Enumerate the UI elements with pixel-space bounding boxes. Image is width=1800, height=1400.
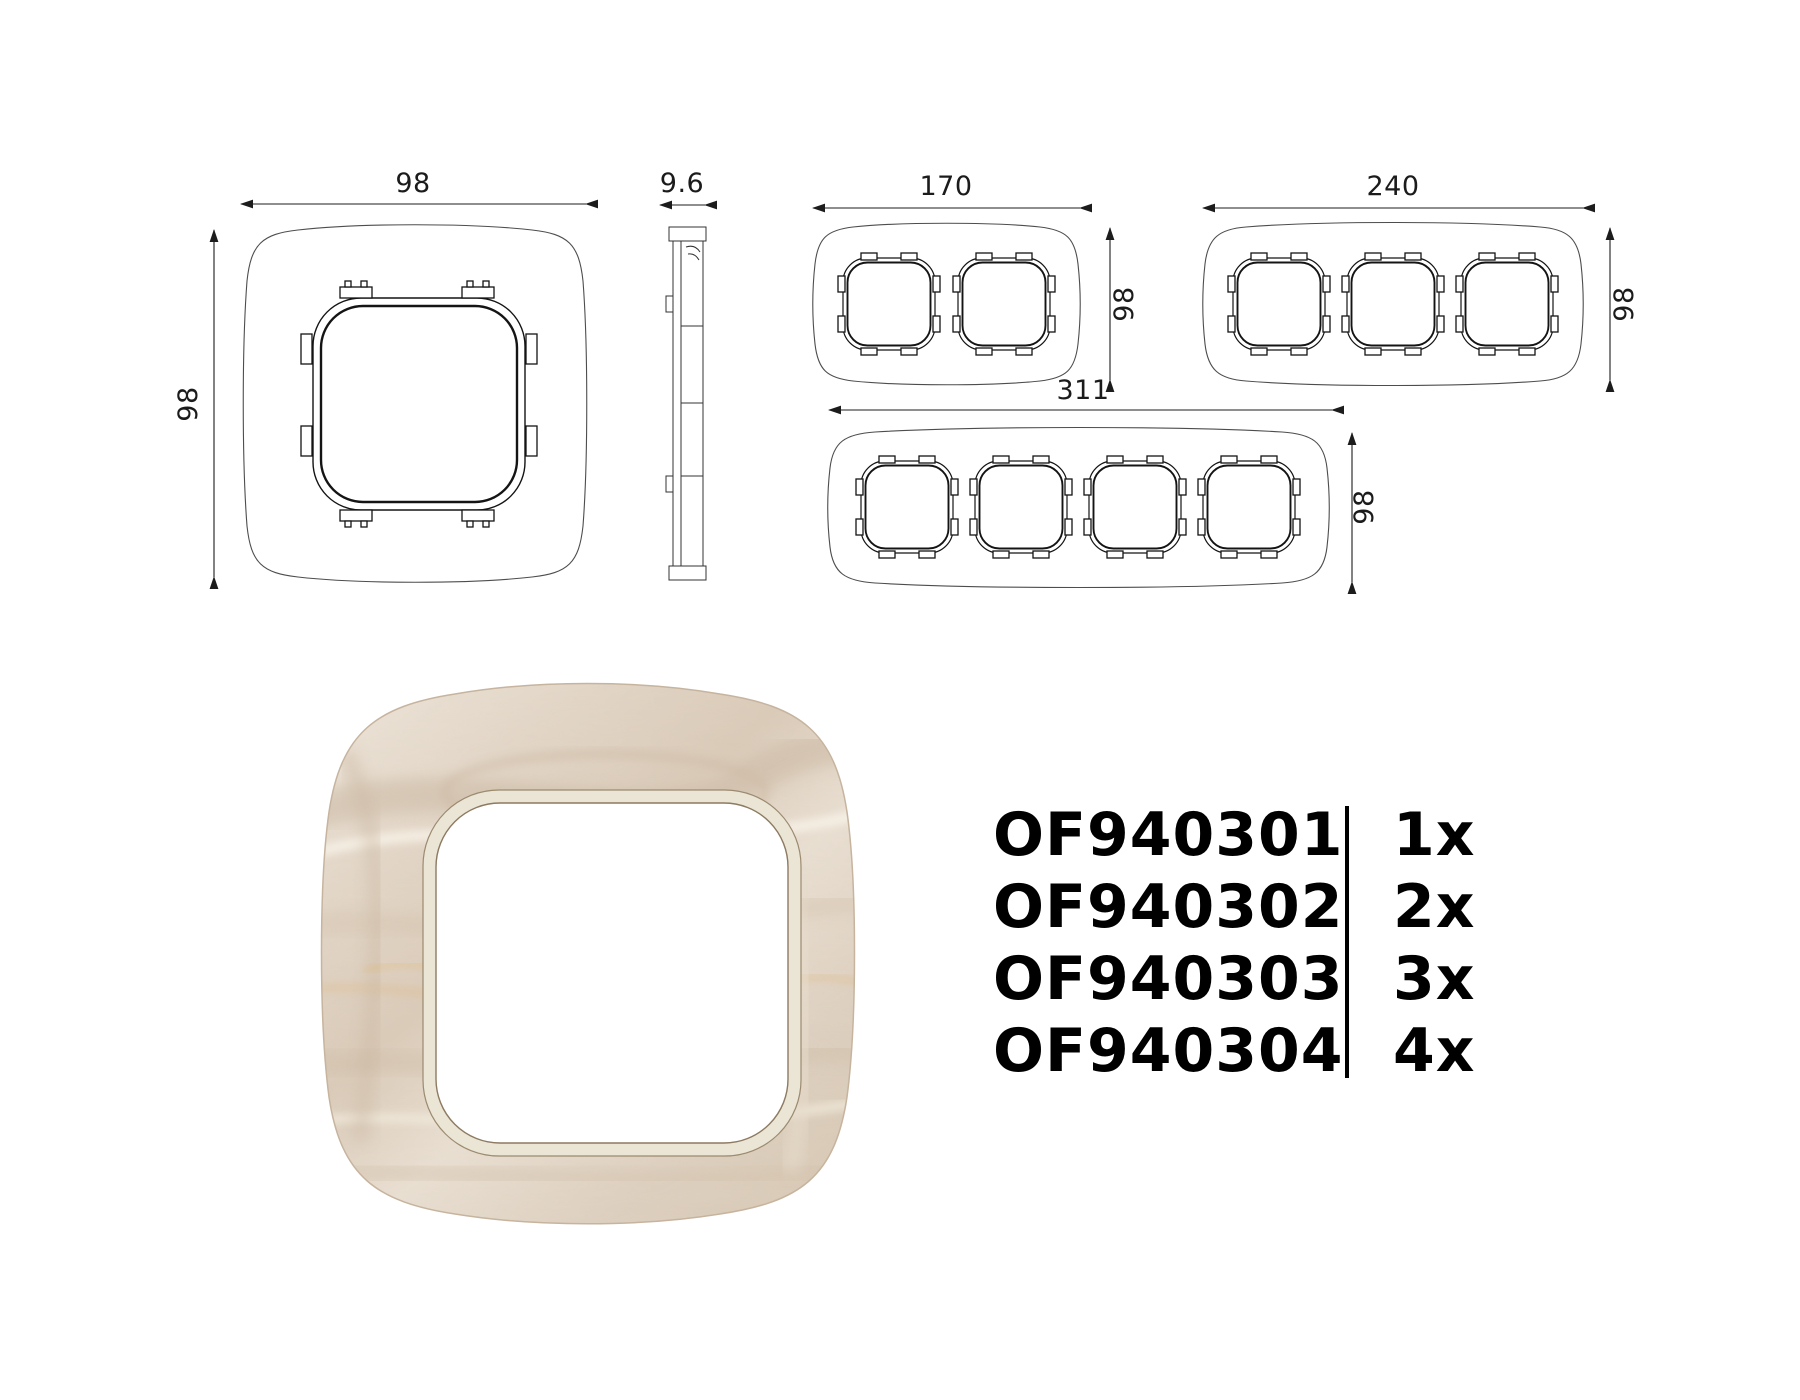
part-quantity: 4x [1393, 1016, 1475, 1086]
dim-depth: 9.6 [660, 168, 704, 199]
side-view [666, 227, 706, 580]
part-code: OF940303 [993, 944, 1345, 1014]
part-quantity: 1x [1393, 800, 1475, 870]
dim-2gang-width: 170 [919, 171, 972, 202]
part-quantity: 2x [1393, 872, 1475, 942]
product-sheet: 98 98 9.6 170 98 240 98 311 98 [0, 0, 1800, 1400]
dim-4gang-width: 311 [1056, 375, 1109, 406]
part-code: OF940304 [993, 1016, 1345, 1086]
part-row: OF940304 4x [993, 1015, 1475, 1087]
frame-3gang-drawing [1203, 223, 1584, 386]
part-code: OF940301 [993, 800, 1345, 870]
part-number-list: OF940301 1x OF940302 2x OF940303 3x OF94… [993, 799, 1475, 1087]
technical-drawings: 98 98 9.6 170 98 240 98 311 98 [0, 0, 1800, 660]
dim-2gang-height: 98 [1109, 286, 1140, 321]
dim-3gang-width: 240 [1366, 171, 1419, 202]
front-view-1gang [243, 225, 587, 583]
part-row: OF940302 2x [993, 871, 1475, 943]
frame-4gang-drawing [828, 428, 1330, 588]
part-quantity: 3x [1393, 944, 1475, 1014]
part-code: OF940302 [993, 872, 1345, 942]
part-row: OF940303 3x [993, 943, 1475, 1015]
frame-2gang-drawing [813, 223, 1081, 385]
product-opening [423, 790, 801, 1156]
product-render-image [305, 672, 870, 1237]
dim-3gang-height: 98 [1609, 286, 1640, 321]
dim-front-height: 98 [173, 386, 204, 421]
dim-4gang-height: 98 [1349, 489, 1380, 524]
parts-divider-line [1345, 806, 1349, 1078]
dim-front-width: 98 [395, 168, 430, 199]
dimension-lines [214, 204, 1610, 582]
part-row: OF940301 1x [993, 799, 1475, 871]
